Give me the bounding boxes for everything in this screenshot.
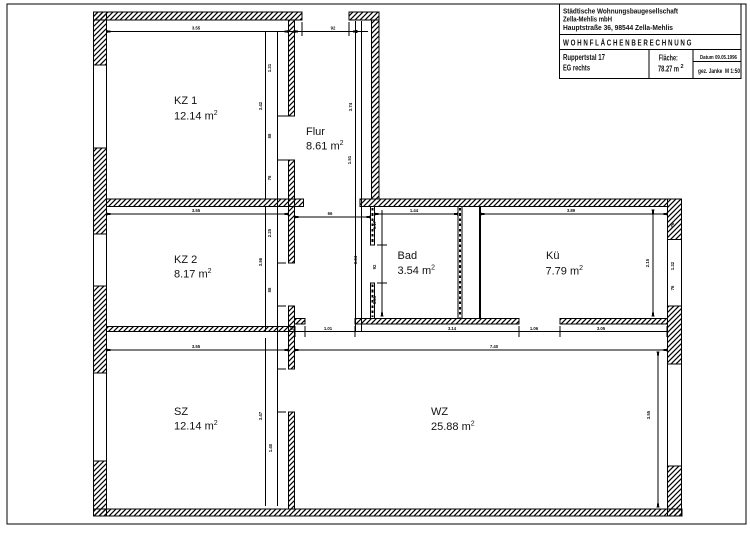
svg-text:W O H N F L Ä C H E N B E R E: W O H N F L Ä C H E N B E R E C H N U N …: [563, 37, 692, 47]
svg-text:76: 76: [670, 222, 675, 227]
svg-text:1.01: 1.01: [324, 326, 333, 331]
svg-text:WZ: WZ: [431, 406, 448, 418]
svg-text:8.17 m2: 8.17 m2: [174, 268, 212, 281]
svg-text:KZ 2: KZ 2: [174, 254, 197, 266]
svg-text:3.34: 3.34: [353, 255, 358, 264]
svg-text:2.15: 2.15: [645, 258, 650, 267]
svg-text:3.55: 3.55: [646, 410, 651, 419]
svg-text:78.27 m: 78.27 m: [658, 65, 679, 74]
svg-text:12.14 m2: 12.14 m2: [174, 420, 218, 433]
svg-text:10: 10: [290, 326, 295, 331]
svg-text:KZ 1: KZ 1: [174, 95, 197, 107]
svg-text:1.31: 1.31: [267, 63, 272, 72]
svg-text:78: 78: [267, 175, 272, 180]
svg-text:3.54 m2: 3.54 m2: [398, 265, 436, 278]
svg-text:3.55: 3.55: [192, 26, 201, 31]
svg-text:Fläche:: Fläche:: [659, 54, 678, 63]
svg-text:25.88 m2: 25.88 m2: [431, 421, 475, 434]
svg-text:1.25: 1.25: [372, 295, 377, 304]
svg-text:3.14: 3.14: [448, 326, 457, 331]
svg-text:2.25: 2.25: [267, 228, 272, 237]
svg-text:Datum 09.05.1996: Datum 09.05.1996: [700, 55, 737, 61]
svg-text:Flur: Flur: [306, 126, 325, 138]
svg-text:3.55: 3.55: [192, 208, 201, 213]
svg-text:3.05: 3.05: [597, 326, 606, 331]
svg-text:3.42: 3.42: [258, 101, 263, 110]
svg-text:SZ: SZ: [174, 406, 188, 418]
svg-text:1.17: 1.17: [372, 220, 377, 229]
svg-text:1.51: 1.51: [347, 155, 352, 164]
svg-text:3.56: 3.56: [258, 257, 263, 266]
svg-text:Bad: Bad: [398, 250, 418, 262]
svg-text:gez. Janke M 1:50: gez. Janke M 1:50: [698, 68, 740, 75]
svg-text:EG rechts: EG rechts: [563, 64, 590, 73]
svg-text:Kü: Kü: [546, 250, 559, 262]
svg-text:1.40: 1.40: [268, 443, 273, 452]
svg-text:7.40: 7.40: [490, 344, 499, 349]
svg-text:1.06: 1.06: [530, 326, 539, 331]
svg-text:12.14 m2: 12.14 m2: [174, 110, 218, 123]
svg-text:76: 76: [670, 285, 675, 290]
svg-text:2: 2: [681, 64, 684, 70]
svg-text:66: 66: [328, 211, 333, 216]
svg-text:88: 88: [267, 133, 272, 138]
svg-text:1.44: 1.44: [410, 208, 419, 213]
svg-text:88: 88: [267, 287, 272, 292]
svg-text:3.89: 3.89: [567, 208, 576, 213]
svg-text:92: 92: [372, 264, 377, 269]
svg-text:3.74: 3.74: [348, 102, 353, 111]
svg-text:1.32: 1.32: [670, 261, 675, 270]
svg-text:Hauptstraße 36, 98544 Zella-Me: Hauptstraße 36, 98544 Zella-Mehlis: [563, 23, 673, 32]
svg-text:92: 92: [331, 26, 336, 31]
svg-text:3.47: 3.47: [258, 411, 263, 420]
svg-text:Ruppertstal 17: Ruppertstal 17: [563, 53, 605, 62]
svg-text:7.79 m2: 7.79 m2: [546, 265, 584, 278]
svg-text:8.61 m2: 8.61 m2: [306, 140, 344, 153]
svg-text:3.55: 3.55: [192, 344, 201, 349]
